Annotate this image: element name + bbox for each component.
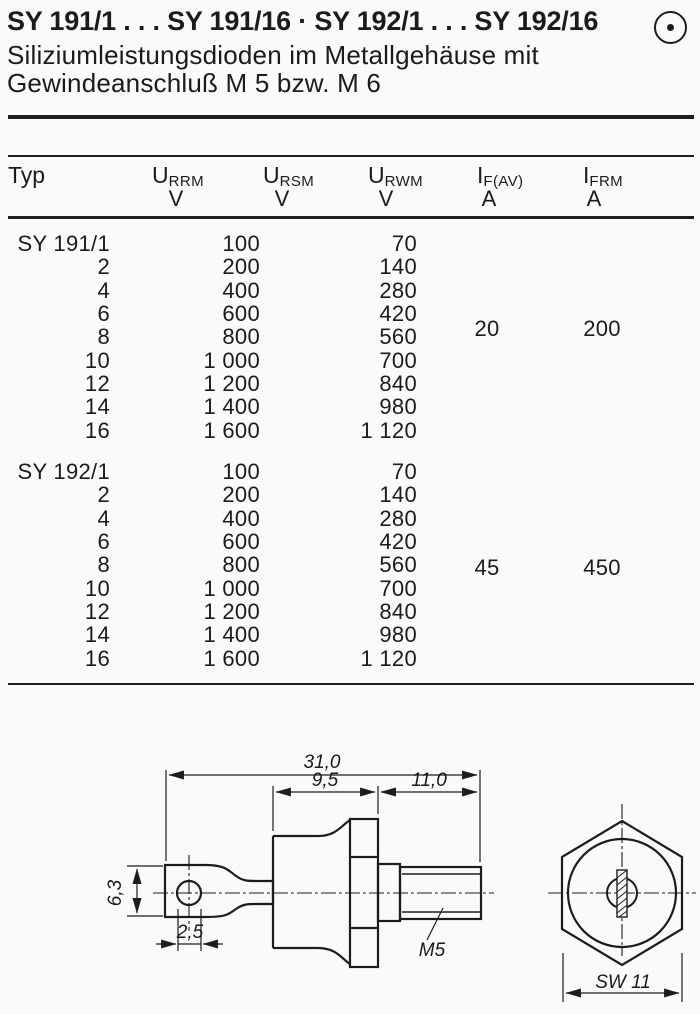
dim-label-hole: 2,5 <box>176 922 204 943</box>
dimension-lines <box>137 775 679 993</box>
thread-label: M5 <box>419 940 446 961</box>
terminal-lug-outline <box>165 865 273 917</box>
package-outline-drawing: 31,0 9,5 11,0 6,3 2,5 M5 SW 11 <box>0 0 700 1014</box>
m5-leader-line <box>427 908 443 940</box>
extension-lines <box>127 770 682 1002</box>
case-top-edge <box>273 820 350 836</box>
dim-label-case: 9,5 <box>312 770 339 791</box>
dim-label-lug: 6,3 <box>105 879 126 906</box>
case-bottom-edge <box>273 948 350 964</box>
dim-label-stud: 11,0 <box>411 770 447 791</box>
wrench-size-label: SW 11 <box>595 972 651 993</box>
